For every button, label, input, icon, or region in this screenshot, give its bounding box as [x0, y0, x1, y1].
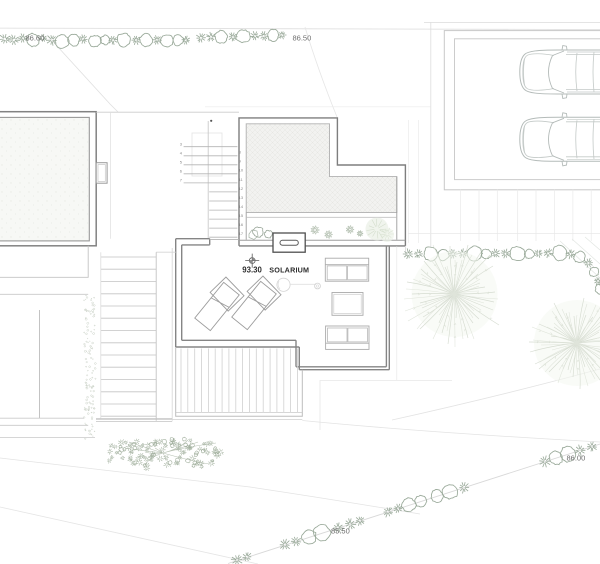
- svg-text:SOLARIUM: SOLARIUM: [269, 265, 309, 274]
- svg-text:85.50: 85.50: [331, 527, 350, 536]
- svg-text:86.00: 86.00: [567, 454, 586, 463]
- svg-text:93.30: 93.30: [242, 265, 262, 274]
- svg-text:86.50: 86.50: [293, 34, 312, 43]
- svg-text:86.60: 86.60: [26, 34, 45, 43]
